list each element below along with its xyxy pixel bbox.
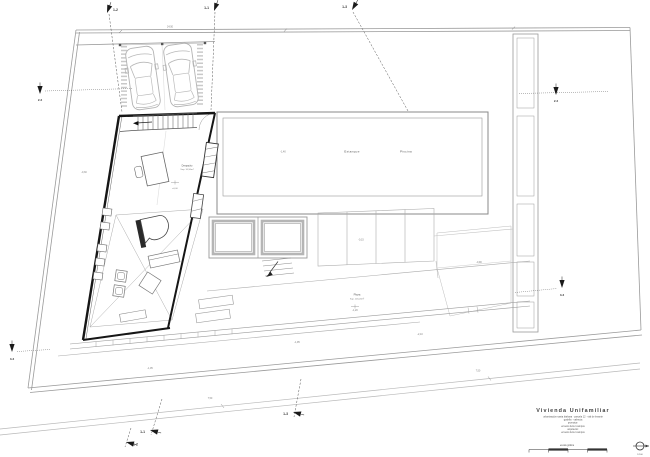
pool-label: Piscina [400, 150, 412, 154]
terrace-level-1: -1,05 [147, 367, 153, 370]
section-marker-top-mid [212, 0, 221, 12]
deck-grid [318, 209, 513, 279]
plaza-level: -1,20 [352, 309, 358, 312]
scale-caption: escala gráfica [560, 444, 575, 447]
car-1 [122, 45, 163, 111]
north-datum-icon [633, 442, 649, 450]
top-dimension: 24,50 [167, 26, 174, 29]
title-block: Vivienda Unifamiliar urbanización santa … [529, 408, 649, 456]
plaza-level-mark [351, 305, 359, 309]
project-title: Vivienda Unifamiliar [536, 408, 609, 414]
terrace-level-2: -1,95 [294, 341, 300, 344]
section-label: 3-3 [10, 357, 15, 361]
section-label: 3-3 [560, 293, 565, 297]
rug [120, 310, 147, 322]
pond-label: Estanque [344, 150, 359, 154]
site-boundary [28, 28, 642, 393]
section-label: 1-3 [342, 5, 347, 9]
deck-level: -0,15 [358, 239, 364, 242]
street-dim-1: 7,50 [208, 398, 213, 400]
street-lines [0, 363, 640, 435]
bench-1 [199, 295, 234, 309]
street-dim-2: 7,50 [476, 371, 481, 373]
section-marker-top-right [350, 0, 360, 11]
mid-steps [262, 258, 294, 277]
pool-depth-label: -1,40 [280, 151, 286, 154]
section-marker-east [553, 84, 558, 96]
dim-node [161, 43, 163, 45]
window-box-1 [202, 142, 219, 177]
terrace-steps [58, 301, 530, 356]
scale-bar [529, 448, 607, 452]
stool-1 [115, 270, 127, 282]
office-area: Sup. 10,50m² [180, 168, 193, 171]
bench-2 [196, 309, 231, 323]
skylight-panels [209, 217, 307, 258]
section-label: 1-2 [113, 8, 118, 12]
north-note: 1/100 [637, 454, 643, 456]
square-table [139, 272, 161, 294]
piano [135, 214, 172, 248]
stair-arrow-icon [133, 121, 139, 126]
office-level: ±0,00 [172, 188, 178, 190]
section-label: 2-2 [38, 98, 43, 102]
section-marker-bottom-mid [149, 427, 161, 435]
section-label: 1-3 [283, 412, 288, 416]
section-label: 1-1 [204, 6, 209, 10]
floor-plan-sheet: 24,50 7,50 7,50 Estanque Piscina -1,40 [0, 0, 650, 457]
section-label: 1-1 [140, 430, 145, 434]
garden-level: -0,30 [81, 171, 87, 174]
section-marker-diag-left [9, 341, 14, 353]
section-marker-diag-right [559, 277, 564, 289]
planter-strip [513, 34, 538, 332]
section-label: 2-2 [554, 99, 559, 103]
dim-node [119, 44, 121, 46]
office-level-mark [171, 181, 179, 185]
plaza [207, 226, 530, 316]
pool [217, 112, 488, 214]
desk [132, 152, 169, 188]
stool-2 [113, 285, 125, 297]
terrace-level-3: -2,10 [417, 333, 423, 336]
sofa [148, 250, 180, 268]
section-marker-west [37, 83, 42, 95]
title-line-6: ernesto ferrer campos [561, 431, 585, 434]
site-plan-drawing: 24,50 7,50 7,50 Estanque Piscina -1,40 [0, 0, 650, 457]
office-label: Despacho [182, 165, 193, 168]
section-label: 1-2 [133, 443, 138, 447]
car-2 [160, 42, 201, 108]
plaza-area: Sup. 145,20m² [350, 298, 365, 301]
dim-node [204, 42, 206, 44]
plaza-label: Plaza [354, 293, 361, 297]
lawn-level: -0,90 [476, 261, 482, 264]
